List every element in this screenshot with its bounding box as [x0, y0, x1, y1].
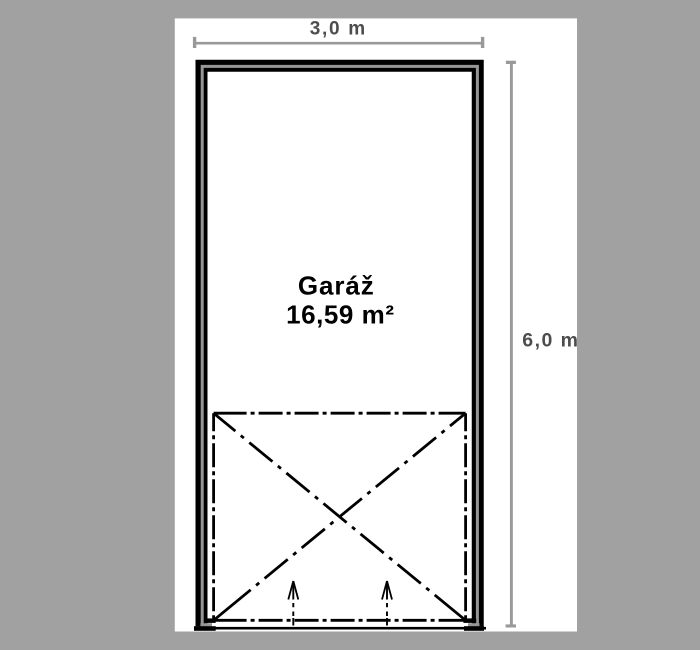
- svg-text:16,59 m²: 16,59 m²: [286, 300, 394, 330]
- svg-text:3,0 m: 3,0 m: [310, 19, 367, 40]
- svg-text:Garáž: Garáž: [298, 271, 375, 301]
- svg-text:6,0 m: 6,0 m: [522, 330, 579, 352]
